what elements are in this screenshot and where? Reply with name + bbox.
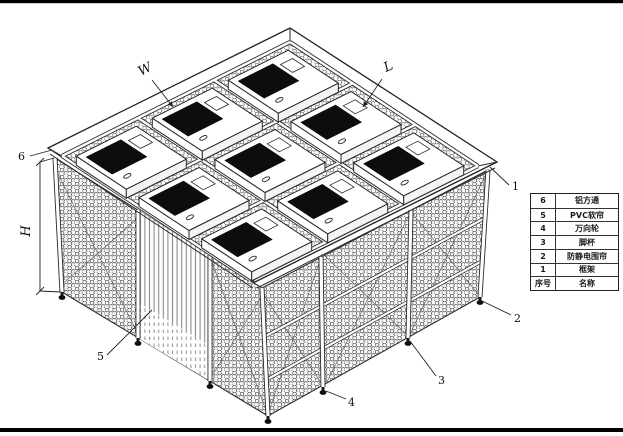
table-header-name: 名称	[555, 276, 618, 290]
part-no: 2	[531, 249, 555, 263]
part-name: 脚杯	[555, 235, 618, 249]
callout-2: 2	[514, 312, 521, 325]
foot-caster	[320, 387, 327, 395]
height-label: H	[19, 225, 34, 238]
width-label: W	[136, 59, 156, 79]
bottom-border-line	[0, 428, 623, 432]
length-label: L	[381, 58, 396, 76]
part-name: 框架	[555, 263, 618, 277]
callout-4: 4	[348, 396, 355, 409]
part-name: PVC软帘	[555, 208, 618, 222]
part-no: 6	[531, 194, 555, 208]
callout-1: 1	[512, 180, 519, 193]
parts-table: 6 铝方通 5 PVC软帘 4 万向轮 3 脚杯 2 防静电围帘 1 框架 序号…	[530, 193, 619, 291]
part-no: 4	[531, 221, 555, 235]
part-no: 3	[531, 235, 555, 249]
callout-3: 3	[438, 374, 445, 387]
part-name: 防静电围帘	[555, 249, 618, 263]
part-no: 1	[531, 263, 555, 277]
part-name: 万向轮	[555, 221, 618, 235]
top-border-line	[0, 0, 623, 3]
part-name: 铝方通	[555, 194, 618, 208]
table-header-no: 序号	[531, 276, 555, 290]
drawing-sheet: H W L 6 1 2 3 4 5 6 铝方通 5 PVC软帘 4 万向轮 3 …	[0, 0, 623, 436]
foot-caster	[265, 416, 272, 424]
callout-6: 6	[18, 150, 25, 163]
part-no: 5	[531, 208, 555, 222]
callout-5: 5	[97, 350, 104, 363]
